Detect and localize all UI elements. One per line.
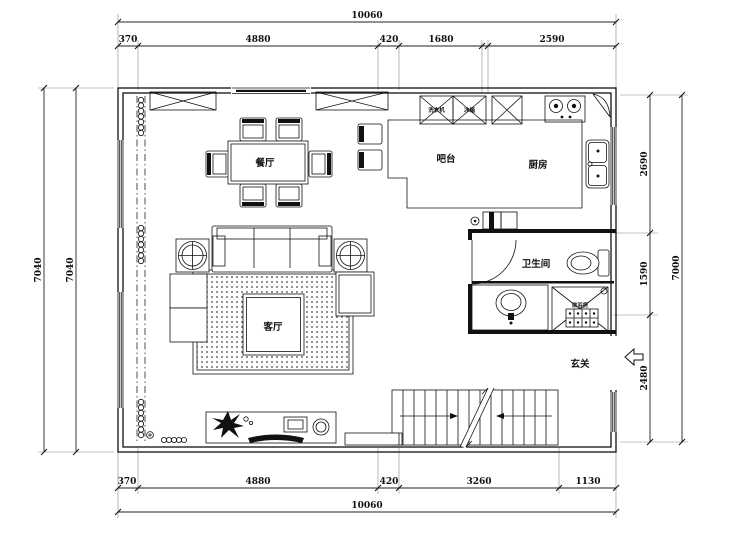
label-dining: 餐厅 xyxy=(254,157,275,169)
label-washer: 洗衣机 xyxy=(428,106,445,114)
dining-chair xyxy=(240,184,266,207)
dining-chair xyxy=(276,118,302,141)
dim-top-3: 420 xyxy=(380,35,399,45)
sofa xyxy=(212,226,332,272)
window-top xyxy=(231,87,311,94)
label-bar: 吧台 xyxy=(436,153,456,165)
label-fridge: 冰箱 xyxy=(464,106,476,114)
label-bathroom: 卫生间 xyxy=(522,258,551,270)
bathroom-door xyxy=(472,240,516,284)
dim-top-1: 370 xyxy=(119,35,138,45)
dim-right-total: 7000 xyxy=(672,255,682,280)
dim-bottom-1: 370 xyxy=(118,477,137,487)
window-right-lower xyxy=(610,392,617,432)
label-living: 客厅 xyxy=(262,321,283,333)
entry-arrow-icon xyxy=(625,349,643,365)
armchair-left xyxy=(170,274,207,342)
bar-kitchen-counter xyxy=(358,120,582,208)
bathroom xyxy=(472,240,609,331)
wash-basin xyxy=(472,285,548,330)
shower-tray xyxy=(552,287,608,331)
dim-left-1: 7040 xyxy=(34,257,44,282)
entry-opening xyxy=(610,336,618,390)
window-left-lower xyxy=(117,292,124,408)
living-room xyxy=(170,226,374,374)
radiator-coil xyxy=(147,432,187,443)
curtain-track xyxy=(137,96,145,444)
side-table-left xyxy=(176,239,209,272)
step-ledge xyxy=(345,433,402,445)
dim-bottom-3: 420 xyxy=(380,477,399,487)
dim-left-2: 7040 xyxy=(66,257,76,282)
small-appliance xyxy=(471,212,517,229)
label-kitchen: 厨房 xyxy=(528,159,547,171)
tv-wall xyxy=(147,411,336,443)
dim-right-3: 2480 xyxy=(640,365,650,390)
bar-stool xyxy=(358,124,382,144)
label-shower: 淋浴房 xyxy=(572,301,589,309)
window-right-kitchen xyxy=(610,127,617,205)
window-left-upper xyxy=(117,140,124,228)
gas-stove xyxy=(545,96,585,122)
curtain-coil-middle xyxy=(138,225,143,263)
dim-top-4: 1680 xyxy=(428,35,453,45)
dim-bottom-total: 10060 xyxy=(351,501,382,511)
dim-top-total: 10060 xyxy=(351,11,382,21)
stairs xyxy=(345,388,558,447)
dim-bottom-4: 3260 xyxy=(466,477,491,487)
dining-chair xyxy=(240,118,266,141)
dim-right-2: 1590 xyxy=(640,261,650,286)
curtain-coil-top xyxy=(138,97,143,135)
dining-chair xyxy=(206,151,229,177)
bar-stool xyxy=(358,150,382,170)
label-foyer: 玄关 xyxy=(570,358,590,370)
kitchen-sink xyxy=(586,140,609,188)
floor-plan-canvas: 10060 370 4880 420 1680 2590 370 4880 42… xyxy=(0,0,740,555)
dining-chair xyxy=(309,151,332,177)
side-table-right xyxy=(334,239,367,272)
floor-plan-drawing: 10060 370 4880 420 1680 2590 370 4880 42… xyxy=(0,0,740,555)
curtain-coil-bottom xyxy=(138,399,143,437)
dim-right-1: 2690 xyxy=(640,151,650,176)
dim-bottom-2: 4880 xyxy=(245,477,270,487)
armchair-right xyxy=(336,272,374,316)
toilet xyxy=(567,250,609,276)
dim-top-2: 4880 xyxy=(245,35,270,45)
dim-top-5: 2590 xyxy=(539,35,564,45)
cabinet-boxes-dining xyxy=(150,92,388,110)
dim-bottom-5: 1130 xyxy=(575,477,600,487)
corner-cabinet xyxy=(593,94,610,117)
dining-chair xyxy=(276,184,302,207)
